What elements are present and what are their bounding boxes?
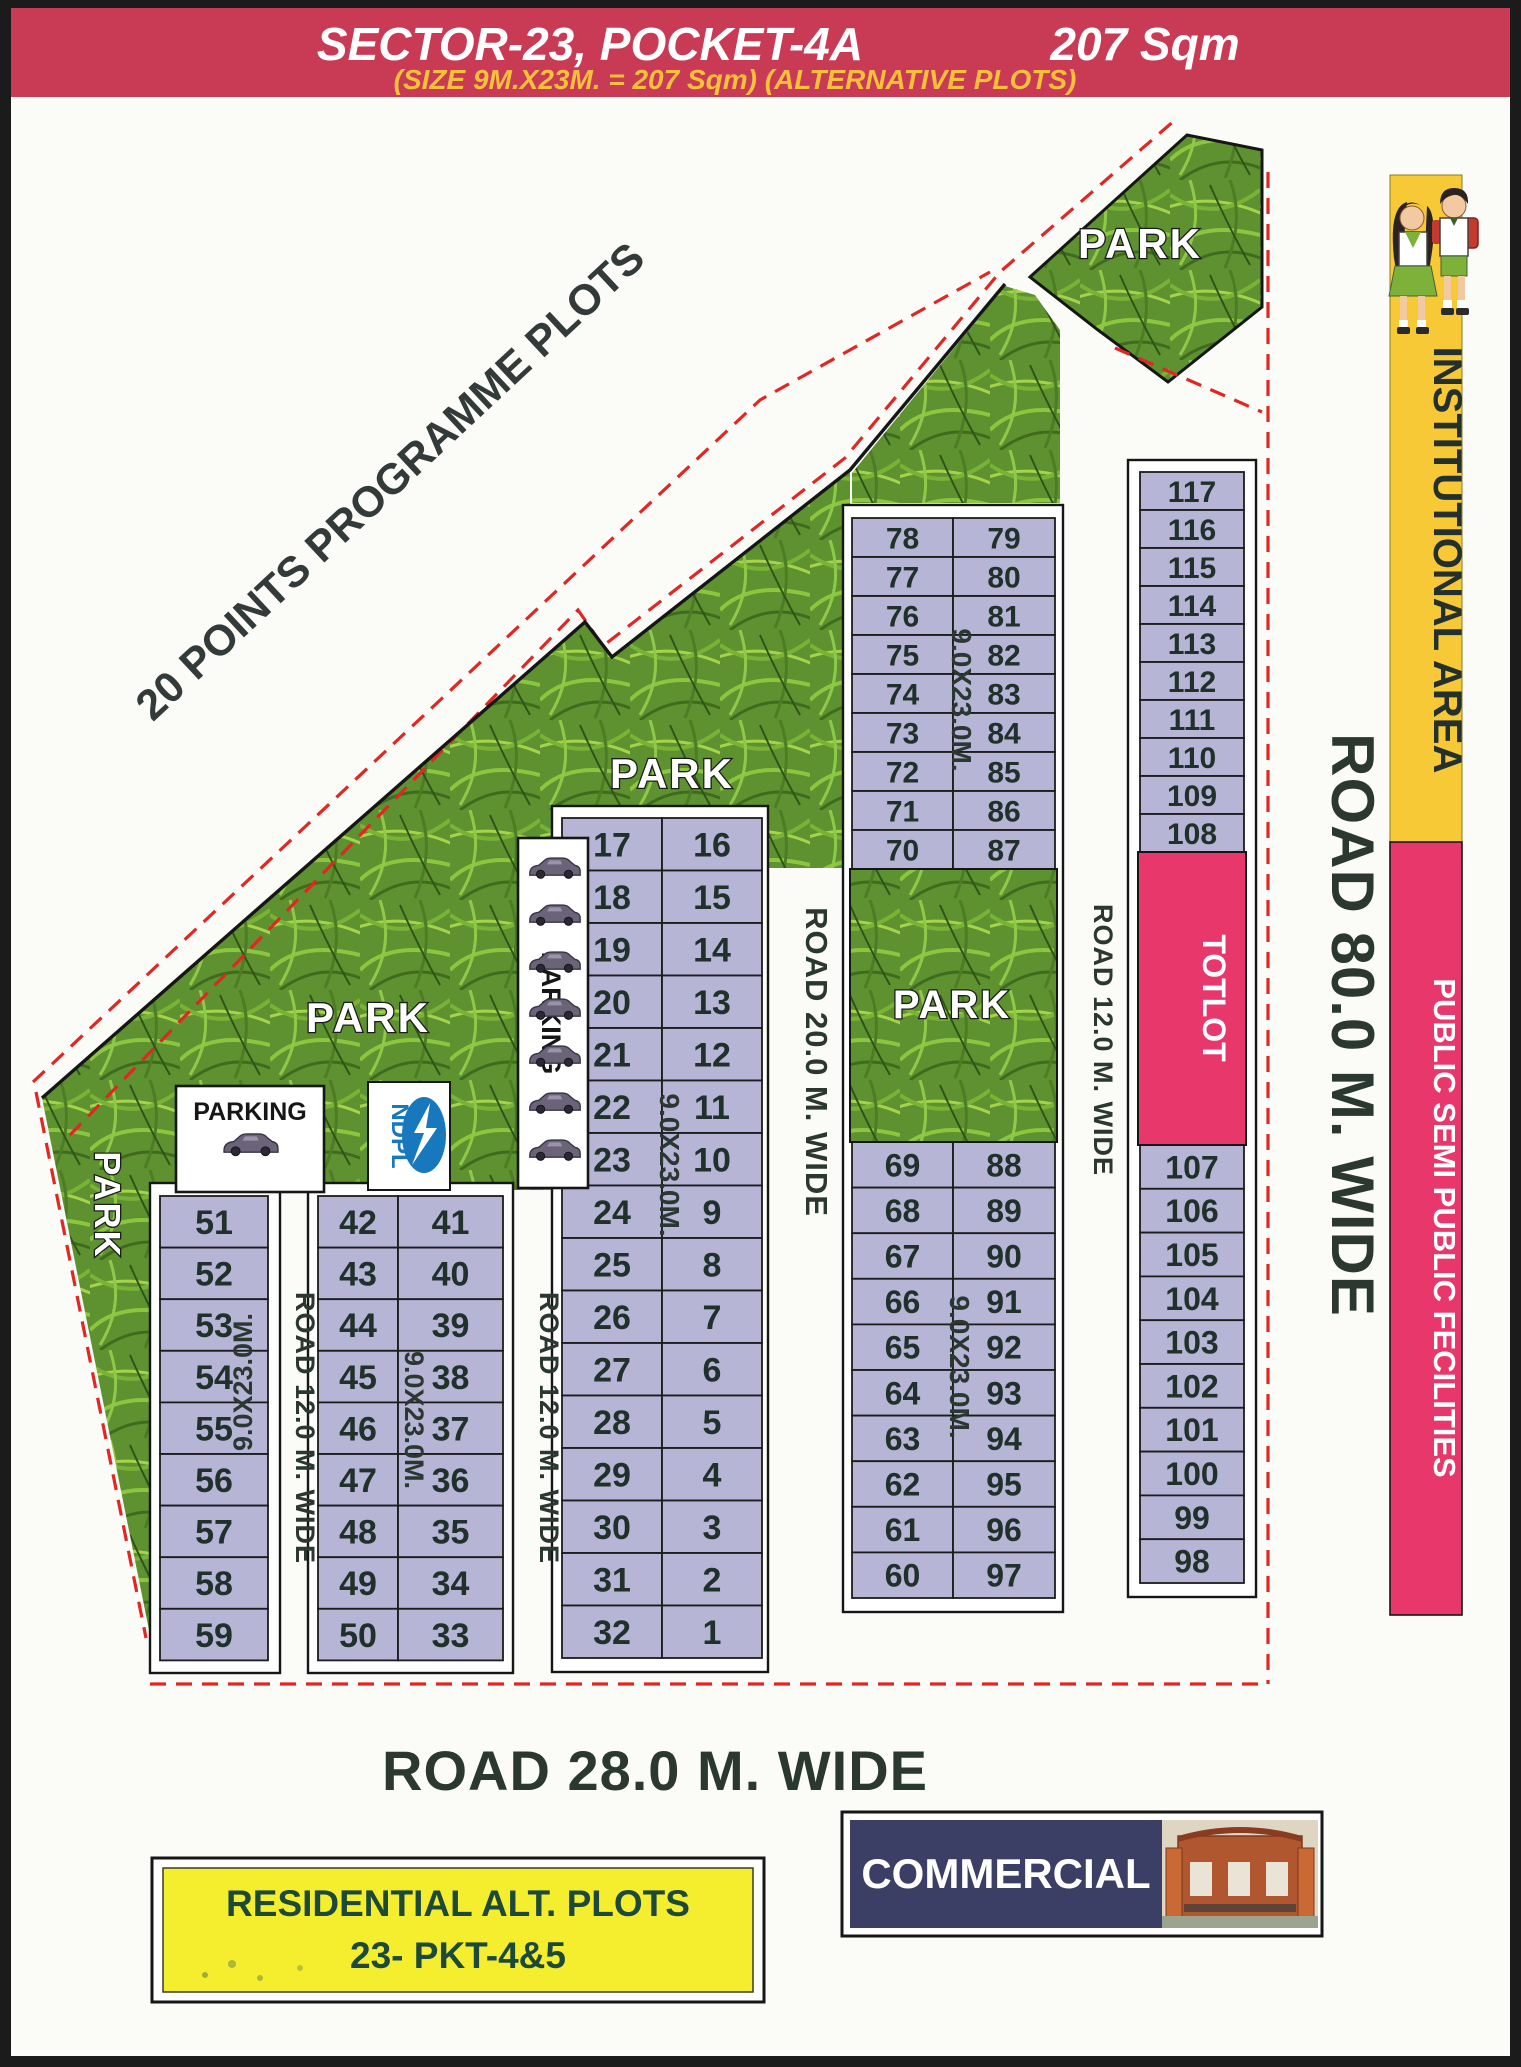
plot-number-114: 114 (1168, 590, 1217, 623)
plot-number-33: 33 (432, 1617, 470, 1655)
residential-label-line1: RESIDENTIAL ALT. PLOTS (226, 1883, 690, 1924)
plot-number-115: 115 (1168, 552, 1216, 585)
plot-number-48: 48 (339, 1514, 377, 1552)
plot-number-3: 3 (703, 1509, 722, 1547)
plot-number-69: 69 (885, 1147, 921, 1183)
plot-number-56: 56 (195, 1462, 233, 1500)
plot-number-108: 108 (1167, 818, 1217, 851)
plot-number-74: 74 (886, 678, 920, 711)
plot-number-9: 9 (703, 1194, 722, 1232)
plot-number-100: 100 (1165, 1456, 1218, 1492)
plot-number-79: 79 (987, 522, 1020, 555)
plot-number-24: 24 (593, 1194, 631, 1232)
plot-size-label-60: 9.0X23.0M. (944, 1295, 975, 1438)
plot-number-26: 26 (593, 1299, 631, 1337)
plot-number-67: 67 (885, 1239, 921, 1275)
plot-number-14: 14 (693, 931, 731, 969)
plot-number-116: 116 (1168, 514, 1216, 547)
road-12-label-3: ROAD 12.0 M. WIDE (1088, 904, 1118, 1176)
plot-number-88: 88 (986, 1147, 1022, 1183)
plot-number-83: 83 (987, 678, 1020, 711)
plot-number-44: 44 (339, 1307, 377, 1345)
plot-number-40: 40 (432, 1256, 470, 1294)
plot-number-95: 95 (986, 1467, 1022, 1503)
plot-number-19: 19 (593, 931, 631, 969)
plot-number-90: 90 (986, 1239, 1022, 1275)
plot-number-99: 99 (1174, 1500, 1210, 1536)
plot-number-94: 94 (986, 1421, 1022, 1457)
plot-layout-poster: SECTOR-23, POCKET-4A 207 Sqm (SIZE 9M.X2… (0, 0, 1521, 2067)
plot-number-92: 92 (986, 1330, 1022, 1366)
plot-number-13: 13 (693, 984, 731, 1022)
road-80-label: ROAD 80.0 M. WIDE (1319, 733, 1386, 1317)
commercial-building-illustration (1162, 1820, 1318, 1928)
plot-number-64: 64 (885, 1375, 921, 1411)
road-28-label: ROAD 28.0 M. WIDE (382, 1739, 928, 1802)
plot-number-102: 102 (1165, 1368, 1218, 1404)
plot-number-63: 63 (885, 1421, 921, 1457)
plot-number-5: 5 (703, 1404, 722, 1442)
plot-number-73: 73 (886, 717, 919, 750)
plot-number-77: 77 (886, 561, 919, 594)
park-label-wedge: PARK (87, 1151, 128, 1258)
plot-number-41: 41 (432, 1204, 470, 1242)
public-semi-label: PUBLIC SEMI PUBLIC FECILITIES (1427, 978, 1462, 1477)
plot-number-36: 36 (432, 1462, 470, 1500)
commercial-label: COMMERCIAL (861, 1850, 1150, 1897)
commercial-legend: COMMERCIAL (842, 1812, 1322, 1936)
plot-number-113: 113 (1168, 628, 1216, 661)
plot-number-82: 82 (987, 639, 1020, 672)
plot-number-45: 45 (339, 1359, 377, 1397)
plot-number-52: 52 (195, 1256, 233, 1294)
plot-number-35: 35 (432, 1514, 470, 1552)
plot-number-80: 80 (987, 561, 1020, 594)
plot-number-110: 110 (1168, 742, 1216, 775)
plot-number-51: 51 (195, 1204, 233, 1242)
plot-number-58: 58 (195, 1565, 233, 1603)
plot-number-7: 7 (703, 1299, 722, 1337)
plot-number-49: 49 (339, 1565, 377, 1603)
plot-number-109: 109 (1167, 780, 1217, 813)
plot-number-103: 103 (1165, 1325, 1218, 1361)
plot-number-98: 98 (1174, 1544, 1210, 1580)
plot-number-117: 117 (1168, 476, 1216, 509)
plot-number-65: 65 (885, 1330, 921, 1366)
plot-number-43: 43 (339, 1256, 377, 1294)
park-label-lower: PARK (306, 994, 430, 1041)
park-label-topright: PARK (1078, 220, 1202, 267)
plot-number-97: 97 (986, 1558, 1022, 1594)
plot-number-57: 57 (195, 1514, 233, 1552)
plot-number-75: 75 (886, 639, 919, 672)
plot-number-47: 47 (339, 1462, 377, 1500)
plot-number-107: 107 (1165, 1149, 1218, 1185)
plot-number-17: 17 (593, 826, 631, 864)
plot-size-label-42: 9.0X23.0M. (399, 1351, 429, 1489)
park-label-middle: PARK (610, 750, 734, 797)
road-12-label-1: ROAD 12.0 M. WIDE (290, 1292, 320, 1564)
plot-number-96: 96 (986, 1512, 1022, 1548)
plot-size-label-78: 9.0X23.0M. (946, 628, 977, 771)
plot-number-28: 28 (593, 1404, 631, 1442)
plot-number-66: 66 (885, 1284, 921, 1320)
plot-number-46: 46 (339, 1410, 377, 1448)
plot-number-21: 21 (593, 1036, 631, 1074)
plot-number-106: 106 (1165, 1193, 1218, 1229)
plot-number-37: 37 (432, 1410, 470, 1448)
plot-number-91: 91 (986, 1284, 1022, 1320)
site-map: SECTOR-23, POCKET-4A 207 Sqm (SIZE 9M.X2… (0, 0, 1521, 2067)
plot-number-81: 81 (987, 600, 1020, 633)
plot-number-32: 32 (593, 1614, 631, 1652)
plot-size-label-17: 9.0X23.0M. (654, 1093, 685, 1236)
page-title: SECTOR-23, POCKET-4A (317, 18, 863, 70)
plot-number-38: 38 (432, 1359, 470, 1397)
plot-number-6: 6 (703, 1351, 722, 1389)
plot-number-10: 10 (693, 1141, 731, 1179)
plot-number-11: 11 (694, 1089, 730, 1127)
plot-number-68: 68 (885, 1193, 921, 1229)
plot-number-4: 4 (703, 1456, 722, 1494)
plot-number-20: 20 (593, 984, 631, 1022)
plot-number-15: 15 (693, 879, 731, 917)
plot-number-16: 16 (693, 826, 731, 864)
plot-number-104: 104 (1165, 1281, 1219, 1317)
plot-number-70: 70 (886, 834, 919, 867)
plot-number-23: 23 (593, 1141, 631, 1179)
plot-number-22: 22 (593, 1089, 631, 1127)
plot-number-84: 84 (987, 717, 1021, 750)
plot-number-93: 93 (986, 1375, 1022, 1411)
totlot-label: TOTLOT (1196, 934, 1232, 1062)
page-title-area: 207 Sqm (1049, 18, 1239, 70)
plot-number-34: 34 (432, 1565, 470, 1603)
plot-number-85: 85 (987, 756, 1020, 789)
page-subtitle: (SIZE 9M.X23M. = 207 Sqm) (ALTERNATIVE P… (394, 64, 1077, 95)
residential-legend: RESIDENTIAL ALT. PLOTS 23- PKT-4&5 (152, 1858, 764, 2002)
plot-number-105: 105 (1165, 1237, 1218, 1273)
plot-number-27: 27 (593, 1351, 631, 1389)
plot-number-61: 61 (885, 1512, 921, 1548)
plot-number-62: 62 (885, 1467, 921, 1503)
plot-number-29: 29 (593, 1456, 631, 1494)
road-12-label-2: ROAD 12.0 M. WIDE (534, 1292, 564, 1564)
plot-number-87: 87 (987, 834, 1020, 867)
plot-number-25: 25 (593, 1246, 631, 1284)
plot-number-112: 112 (1168, 666, 1216, 699)
plot-size-label-51: 9.0X23.0M. (228, 1313, 258, 1451)
plot-number-1: 1 (703, 1614, 722, 1652)
plot-number-2: 2 (703, 1561, 722, 1599)
plot-number-42: 42 (339, 1204, 377, 1242)
plot-number-31: 31 (593, 1561, 631, 1599)
plot-number-8: 8 (703, 1246, 722, 1284)
plot-number-111: 111 (1169, 704, 1216, 737)
plot-number-101: 101 (1165, 1412, 1218, 1448)
plot-number-12: 12 (693, 1036, 731, 1074)
plot-number-30: 30 (593, 1509, 631, 1547)
residential-label-line2: 23- PKT-4&5 (350, 1935, 566, 1976)
plot-number-76: 76 (886, 600, 919, 633)
plot-number-59: 59 (195, 1617, 233, 1655)
park-label-strip: PARK (893, 983, 1011, 1027)
road-20-label: ROAD 20.0 M. WIDE (799, 907, 834, 1217)
plot-number-72: 72 (886, 756, 919, 789)
institutional-label: INSTITUTIONAL AREA (1425, 347, 1469, 774)
plot-number-18: 18 (593, 879, 631, 917)
plot-number-86: 86 (987, 795, 1020, 828)
plot-number-60: 60 (885, 1558, 921, 1594)
plot-number-39: 39 (432, 1307, 470, 1345)
plot-number-71: 71 (886, 795, 919, 828)
plot-number-78: 78 (886, 522, 919, 555)
parking-label: PARKING (193, 1098, 306, 1126)
plot-number-50: 50 (339, 1617, 377, 1655)
plot-number-89: 89 (986, 1193, 1022, 1229)
